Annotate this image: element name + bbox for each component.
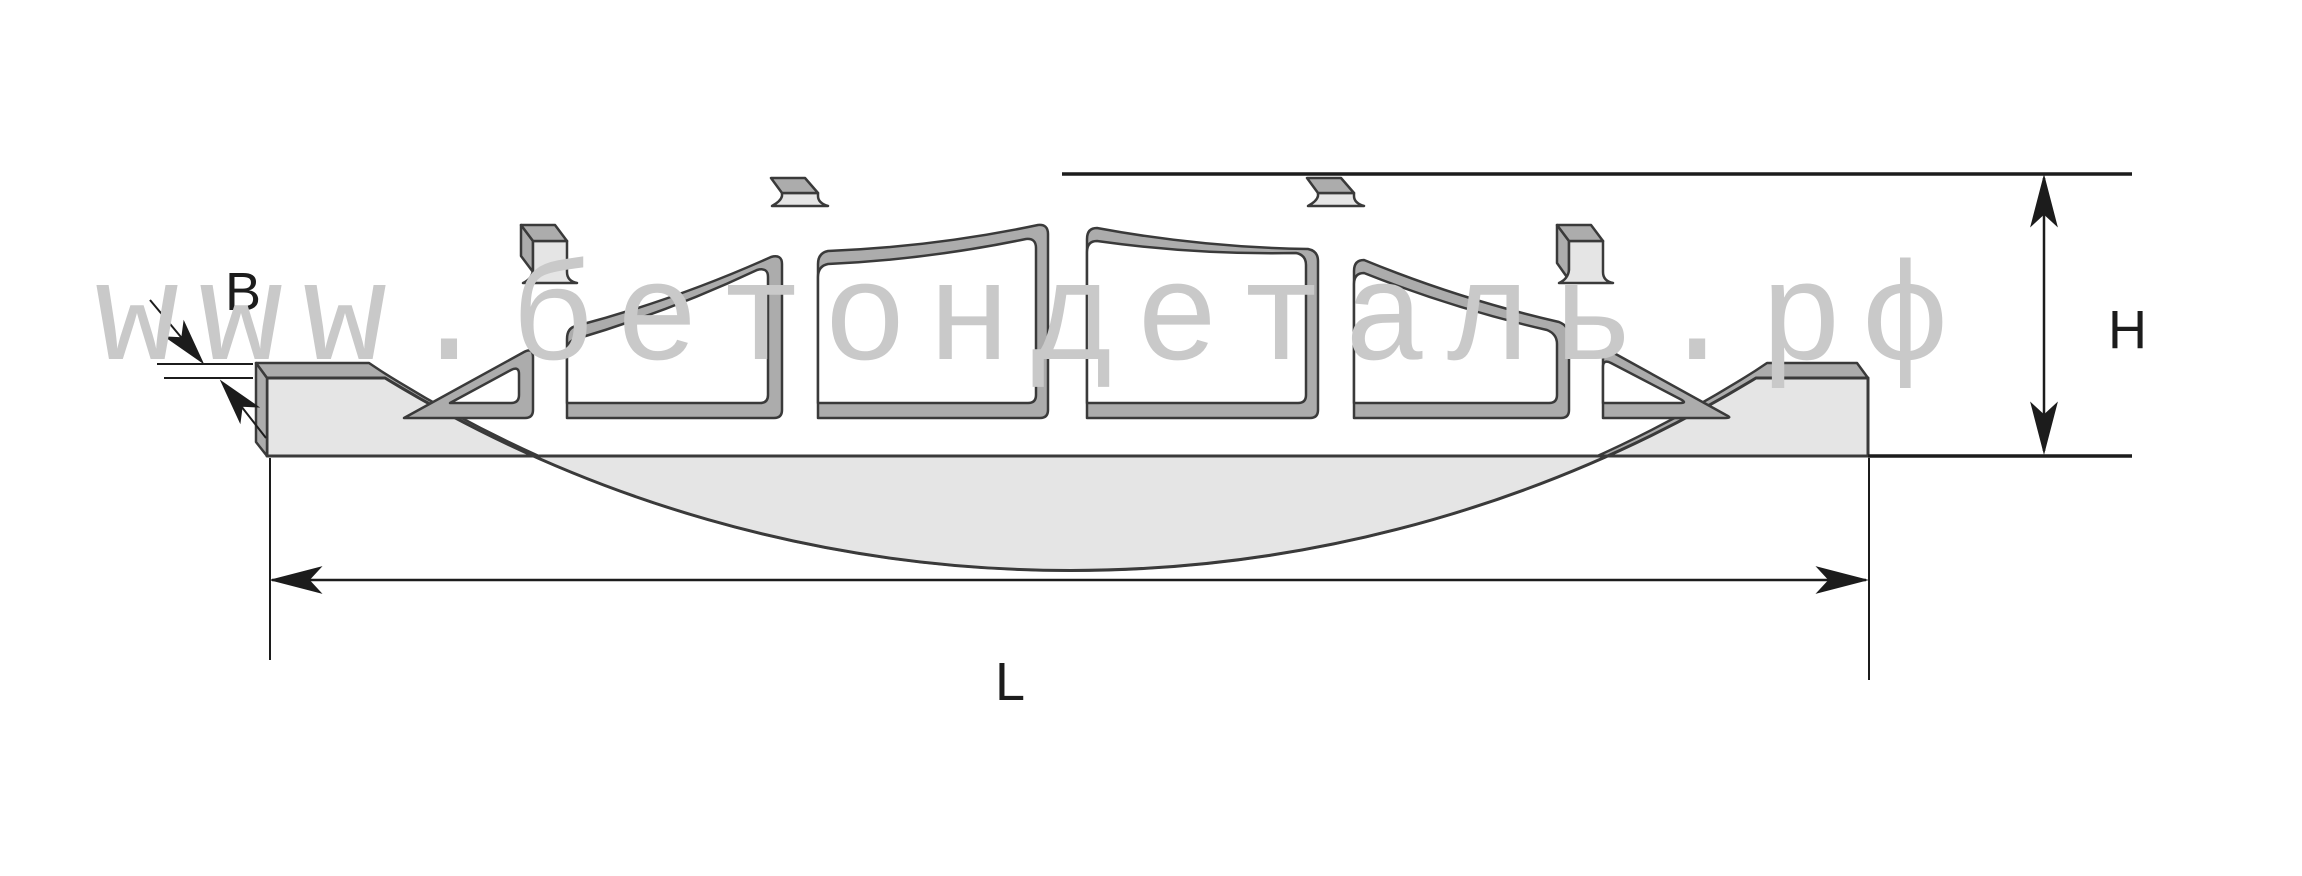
post-stubs: [521, 178, 1613, 283]
label-b: B: [225, 262, 261, 322]
stub-b-neck: [772, 193, 828, 206]
panel-left-side-face: [256, 363, 267, 456]
opening-holes: [450, 239, 1684, 403]
label-h: H: [2108, 300, 2147, 360]
opening-4-hole: [1087, 241, 1306, 403]
technical-drawing-canvas: B H L www.бетондеталь.рф: [0, 0, 2302, 876]
opening-6-hole: [1603, 362, 1684, 403]
label-l: L: [995, 652, 1025, 712]
arched-panel-drawing: B H L: [0, 0, 2302, 876]
stub-c-cap: [1307, 178, 1354, 193]
stub-c-neck: [1308, 193, 1364, 206]
opening-2-hole: [567, 269, 768, 403]
stub-b-cap: [771, 178, 818, 193]
opening-3-hole: [818, 239, 1036, 403]
b-arrow-lower-icon: [212, 373, 259, 422]
